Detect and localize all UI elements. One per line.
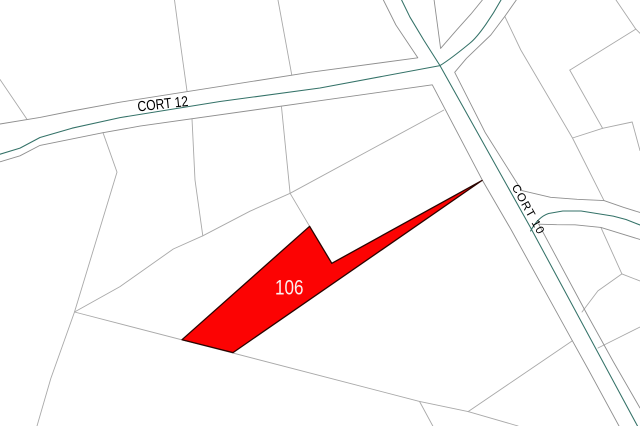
svg-text:106: 106 [275, 277, 303, 300]
